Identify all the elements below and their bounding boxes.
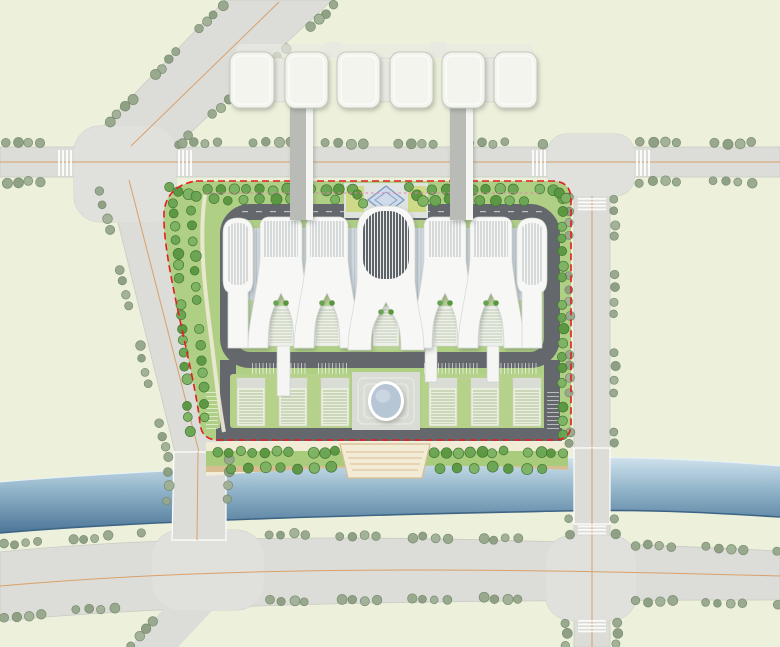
tree <box>136 341 146 351</box>
tree <box>610 376 618 384</box>
tree <box>735 139 745 149</box>
tree <box>22 539 30 547</box>
tree <box>635 137 644 146</box>
tree <box>213 138 222 147</box>
tree <box>172 48 180 56</box>
tree <box>266 595 275 604</box>
tree <box>163 497 171 505</box>
tree <box>452 463 462 473</box>
courtyard-tree <box>437 300 443 306</box>
tree <box>353 190 363 200</box>
tree <box>189 138 198 147</box>
sky-bridge <box>290 104 313 220</box>
tree <box>103 214 113 224</box>
sky-bridge <box>450 104 473 220</box>
parking-stall <box>206 428 218 429</box>
parking-stall <box>329 363 330 374</box>
waterfront-steps-plaza <box>340 444 430 478</box>
tree <box>309 463 320 474</box>
tree <box>198 368 208 378</box>
tower-ribs <box>264 221 298 257</box>
north-block <box>390 52 433 108</box>
central-atrium-ribs <box>363 211 409 279</box>
tree <box>561 619 569 627</box>
parking-stall <box>339 363 340 374</box>
tree <box>490 536 498 544</box>
road-intersection <box>546 536 636 620</box>
tree <box>418 595 426 603</box>
tree <box>348 532 357 541</box>
tree <box>478 138 487 147</box>
tree <box>195 324 204 333</box>
pavilion-ribs <box>480 309 502 343</box>
tree <box>557 313 566 322</box>
parking-stall <box>336 363 337 374</box>
tree <box>649 137 659 147</box>
tree <box>106 225 115 234</box>
tree <box>727 545 737 555</box>
tree <box>610 515 618 523</box>
tree <box>174 260 184 270</box>
tree <box>557 273 566 282</box>
tree <box>180 362 189 371</box>
tree <box>161 443 170 452</box>
tree <box>186 206 195 215</box>
tree <box>274 137 284 147</box>
courtyard-tree <box>447 300 453 306</box>
tree <box>523 448 532 457</box>
tree <box>112 110 121 119</box>
tree <box>643 540 652 549</box>
parking-stall <box>470 363 471 374</box>
north-block <box>337 52 380 108</box>
parking-stall <box>298 363 299 374</box>
tree <box>188 237 197 246</box>
parking-stall <box>536 363 537 374</box>
tree <box>203 17 212 26</box>
north-block <box>442 52 485 108</box>
tower-ribs <box>428 221 462 257</box>
tree <box>565 515 573 523</box>
tree <box>337 595 347 605</box>
tree <box>522 464 533 475</box>
tree <box>661 137 671 147</box>
lane-marking <box>438 211 444 212</box>
tree <box>199 399 208 408</box>
courtyard-tree <box>329 300 335 306</box>
tree <box>558 363 567 372</box>
tree <box>348 595 357 604</box>
tree <box>726 599 735 608</box>
tree <box>519 197 528 206</box>
lane-marking <box>284 211 290 212</box>
parking-stall <box>206 424 218 425</box>
tree <box>738 599 747 608</box>
tree <box>329 0 338 9</box>
tree <box>429 448 439 458</box>
tree <box>224 448 233 457</box>
sky-bridge-canopy <box>306 104 313 220</box>
parking-stall <box>547 400 559 401</box>
tree <box>110 603 120 613</box>
parking-stall <box>449 363 450 374</box>
pod-ribs <box>521 223 543 285</box>
tree <box>293 464 303 474</box>
tree <box>12 612 22 622</box>
tree <box>503 464 513 474</box>
tree <box>566 530 575 539</box>
tree <box>191 251 202 262</box>
courtyard-tree <box>283 300 289 306</box>
terrace-ribs <box>473 390 497 424</box>
tree <box>430 596 438 604</box>
tree <box>535 184 545 194</box>
tree <box>557 222 566 231</box>
tree <box>441 448 452 459</box>
tree <box>631 596 640 605</box>
parking-stall <box>515 363 516 374</box>
tree <box>301 531 310 540</box>
tree <box>191 282 200 291</box>
tree <box>702 598 710 606</box>
tree <box>326 461 337 472</box>
tree <box>128 94 138 104</box>
lane-marking <box>508 211 514 212</box>
tree <box>722 177 731 186</box>
terrace-cap <box>513 378 541 388</box>
tree <box>98 201 106 209</box>
tree <box>372 595 382 605</box>
parking-stall <box>266 363 267 374</box>
tree <box>490 195 501 206</box>
tree <box>314 14 324 24</box>
tree <box>24 176 33 185</box>
parking-stall <box>518 363 519 374</box>
pavilion-ribs <box>434 309 456 343</box>
tree <box>197 356 207 366</box>
tree <box>723 139 733 149</box>
parking-stall <box>547 404 559 405</box>
tree <box>24 612 34 622</box>
parking-stall <box>343 363 344 374</box>
tree <box>408 533 418 543</box>
tree <box>612 640 620 647</box>
parking-stall <box>332 363 333 374</box>
parking-stall <box>294 363 295 374</box>
tree <box>558 261 568 271</box>
tree <box>546 449 555 458</box>
tree <box>558 449 567 458</box>
tree <box>418 196 429 207</box>
tree <box>668 596 678 606</box>
tree <box>34 537 42 545</box>
tree <box>477 446 488 457</box>
tree <box>173 248 184 259</box>
tree <box>191 191 201 201</box>
pavilion-ribs <box>316 309 338 343</box>
tree <box>260 462 271 473</box>
parking-stall <box>270 363 271 374</box>
tree <box>192 296 201 305</box>
tree <box>635 179 643 187</box>
tree <box>118 277 126 285</box>
tree <box>91 535 99 543</box>
tree <box>499 446 508 455</box>
campus-link-bridge <box>487 346 499 382</box>
tree <box>330 446 339 455</box>
tree <box>408 594 417 603</box>
tree <box>360 531 369 540</box>
tree <box>151 69 161 79</box>
tree <box>656 597 666 607</box>
site-plan-canvas <box>0 0 780 647</box>
tree <box>702 542 710 550</box>
sky-bridge-deck <box>450 104 466 220</box>
tree <box>610 310 618 318</box>
terrace-ribs <box>323 390 347 424</box>
courtyard-tree <box>483 300 489 306</box>
parking-stall <box>477 363 478 374</box>
tree <box>709 177 717 185</box>
tree <box>171 236 180 245</box>
tree <box>290 528 300 538</box>
tree <box>644 598 653 607</box>
tree <box>394 139 403 148</box>
tree <box>24 138 33 147</box>
tree <box>490 595 499 604</box>
tree <box>453 448 464 459</box>
terrace-cap <box>321 378 349 388</box>
oval-highlight <box>376 389 391 403</box>
parking-stall <box>547 396 559 397</box>
tree <box>35 138 44 147</box>
tree <box>558 300 567 309</box>
tree <box>734 178 742 186</box>
tree <box>115 266 124 275</box>
tree <box>430 195 441 206</box>
tree <box>169 209 178 218</box>
parking-stall <box>322 363 323 374</box>
road-intersection <box>152 530 264 610</box>
tree <box>501 534 509 542</box>
tree <box>223 196 232 205</box>
tree <box>610 195 618 203</box>
tree <box>148 617 158 627</box>
tree <box>487 461 498 472</box>
parking-stall <box>547 424 559 425</box>
tree <box>479 534 489 544</box>
tree <box>610 270 619 279</box>
tree <box>501 138 509 146</box>
tree <box>183 401 192 410</box>
tree <box>489 140 497 148</box>
tree <box>479 592 489 602</box>
tree <box>213 447 223 457</box>
tree <box>306 22 316 32</box>
parking-stall <box>273 363 274 374</box>
tree <box>557 378 566 387</box>
tree <box>360 597 369 606</box>
tree <box>36 177 46 187</box>
tree <box>196 340 206 350</box>
tree <box>503 594 513 604</box>
north-block <box>494 52 537 108</box>
pavilion-ribs <box>270 309 292 343</box>
tree <box>610 232 618 240</box>
tree <box>239 195 248 204</box>
tree <box>236 446 245 455</box>
tree <box>277 597 285 605</box>
tree <box>199 382 209 392</box>
sky-bridge-canopy <box>466 104 473 220</box>
tree <box>120 101 130 111</box>
tree <box>419 532 427 540</box>
tree <box>105 117 115 127</box>
parking-stall <box>206 396 218 397</box>
parking-stall <box>501 363 502 374</box>
tree <box>561 193 571 203</box>
tree <box>481 184 491 194</box>
tree <box>224 481 233 490</box>
parking-stall <box>259 363 260 374</box>
tree <box>655 541 664 550</box>
tree <box>611 361 620 370</box>
parking-stall <box>438 363 439 374</box>
tree <box>241 184 250 193</box>
courtyard-tree <box>319 300 325 306</box>
tree <box>243 463 253 473</box>
tree <box>201 140 209 148</box>
tree <box>95 187 104 196</box>
tree <box>418 139 427 148</box>
tree <box>672 138 680 146</box>
tree <box>610 349 618 357</box>
tree <box>558 323 569 334</box>
parking-stall <box>456 363 457 374</box>
tree <box>613 618 622 627</box>
tree <box>178 139 187 148</box>
tree <box>611 529 621 539</box>
parking-stall <box>346 363 347 374</box>
tree <box>648 176 657 185</box>
tree <box>465 447 476 458</box>
tree <box>558 416 568 426</box>
courtyard-tree <box>273 300 279 306</box>
tree <box>613 629 623 639</box>
tree <box>610 389 618 397</box>
tree <box>255 184 265 194</box>
tree <box>667 543 676 552</box>
lane-marking <box>494 211 500 212</box>
tree <box>170 222 180 232</box>
tree <box>2 178 12 188</box>
lane-marking <box>480 211 486 212</box>
terrace-cap <box>237 378 265 388</box>
courtyard-tree <box>378 309 384 315</box>
tree <box>72 606 80 614</box>
parking-stall <box>508 363 509 374</box>
parking-stall <box>463 363 464 374</box>
tree <box>127 642 135 647</box>
tree <box>10 541 18 549</box>
tree <box>248 448 257 457</box>
road-intersection <box>74 126 176 222</box>
parking-stall <box>532 363 533 374</box>
tree <box>37 610 47 620</box>
tree <box>346 139 356 149</box>
lane-marking <box>522 211 528 212</box>
tree <box>183 413 192 422</box>
tree <box>0 613 9 622</box>
tree <box>773 600 780 609</box>
tree <box>747 137 756 146</box>
tree <box>429 140 437 148</box>
tree <box>611 221 620 230</box>
tree <box>334 138 343 147</box>
tree <box>249 139 257 147</box>
parking-stall <box>522 363 523 374</box>
tree <box>610 439 618 447</box>
tree <box>125 302 133 310</box>
lane-marking <box>326 211 332 212</box>
parking-stall <box>547 408 559 409</box>
parking-stall <box>529 363 530 374</box>
tree <box>773 547 780 555</box>
parking-stall <box>459 363 460 374</box>
tree <box>168 199 177 208</box>
north-block <box>285 52 328 108</box>
parking-stall <box>547 392 559 393</box>
tower-ribs <box>474 221 508 257</box>
tree <box>558 207 568 217</box>
tree <box>714 600 722 608</box>
layer-main-building <box>223 206 547 350</box>
tree <box>358 199 367 208</box>
tree <box>558 338 568 348</box>
tree <box>290 596 300 606</box>
parking-stall <box>301 363 302 374</box>
tree <box>277 531 285 539</box>
parking-stall <box>547 412 559 413</box>
tree <box>0 539 9 548</box>
tree <box>610 207 618 215</box>
tree <box>85 604 94 613</box>
tree <box>714 544 723 553</box>
tree <box>200 413 209 422</box>
tree <box>164 452 173 461</box>
tree <box>747 178 757 188</box>
tree <box>138 354 146 362</box>
tree <box>610 298 618 306</box>
layer-north-blocks <box>230 42 537 108</box>
tree <box>358 139 368 149</box>
tree <box>557 234 566 243</box>
tree <box>565 439 573 447</box>
tree <box>122 291 131 300</box>
tree <box>261 137 270 146</box>
parking-stall <box>206 408 218 409</box>
parking-stall <box>291 363 292 374</box>
tree <box>165 55 174 64</box>
tower-ribs <box>310 221 344 257</box>
parking-stall <box>547 420 559 421</box>
parking-stall <box>305 363 306 374</box>
parking-stall <box>504 363 505 374</box>
tree <box>435 464 445 474</box>
tree <box>710 138 719 147</box>
tree <box>321 185 332 196</box>
tree <box>611 283 620 292</box>
